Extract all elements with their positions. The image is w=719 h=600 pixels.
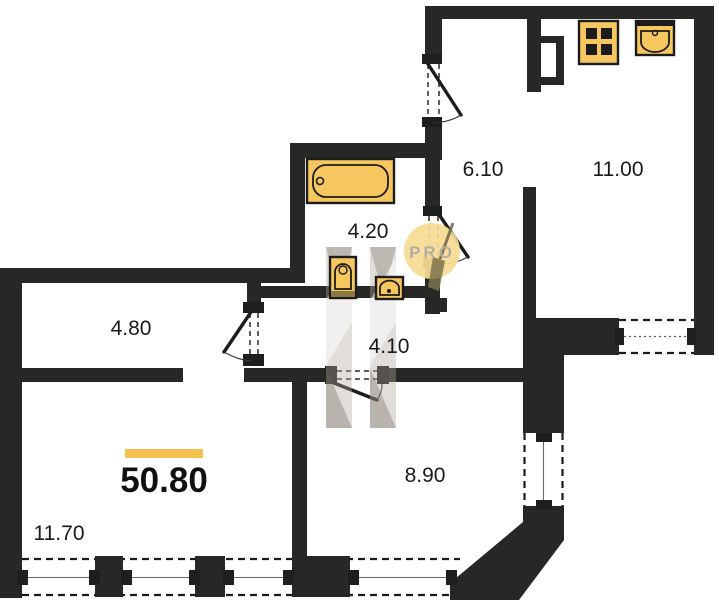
total-area-accent-bar xyxy=(125,449,203,458)
hallway-door xyxy=(224,302,264,366)
window-ticks xyxy=(17,328,696,585)
washbasin-icon xyxy=(376,277,403,299)
bathtub-icon xyxy=(307,159,394,203)
floor-plan-svg: PRO 6.10 11.00 4.20 4.10 4.80 8.90 11.70… xyxy=(0,0,719,600)
watermark-text: PRO xyxy=(409,243,455,262)
room-label-kitchen-living: 11.00 xyxy=(593,158,644,181)
room-label-living-room: 11.70 xyxy=(34,522,85,545)
toilet-icon xyxy=(330,257,356,298)
kitchen-sink-icon xyxy=(636,21,674,55)
room-label-bedroom: 8.90 xyxy=(405,464,446,487)
room-label-corridor: 4.10 xyxy=(369,335,410,358)
ventilation-shaft xyxy=(541,43,556,77)
entrance-door xyxy=(422,54,461,127)
walls xyxy=(0,6,714,600)
pro-badge: PRO xyxy=(404,223,460,291)
stove-icon xyxy=(579,21,618,64)
total-area-value: 50.80 xyxy=(120,461,208,500)
room-label-entry-hall: 6.10 xyxy=(463,158,504,181)
room-label-inner-hall: 4.80 xyxy=(111,317,152,340)
room-label-bathroom: 4.20 xyxy=(348,220,389,243)
total-area: 50.80 xyxy=(120,449,208,500)
floor-plan: PRO 6.10 11.00 4.20 4.10 4.80 8.90 11.70… xyxy=(0,0,719,600)
windows xyxy=(22,320,694,595)
